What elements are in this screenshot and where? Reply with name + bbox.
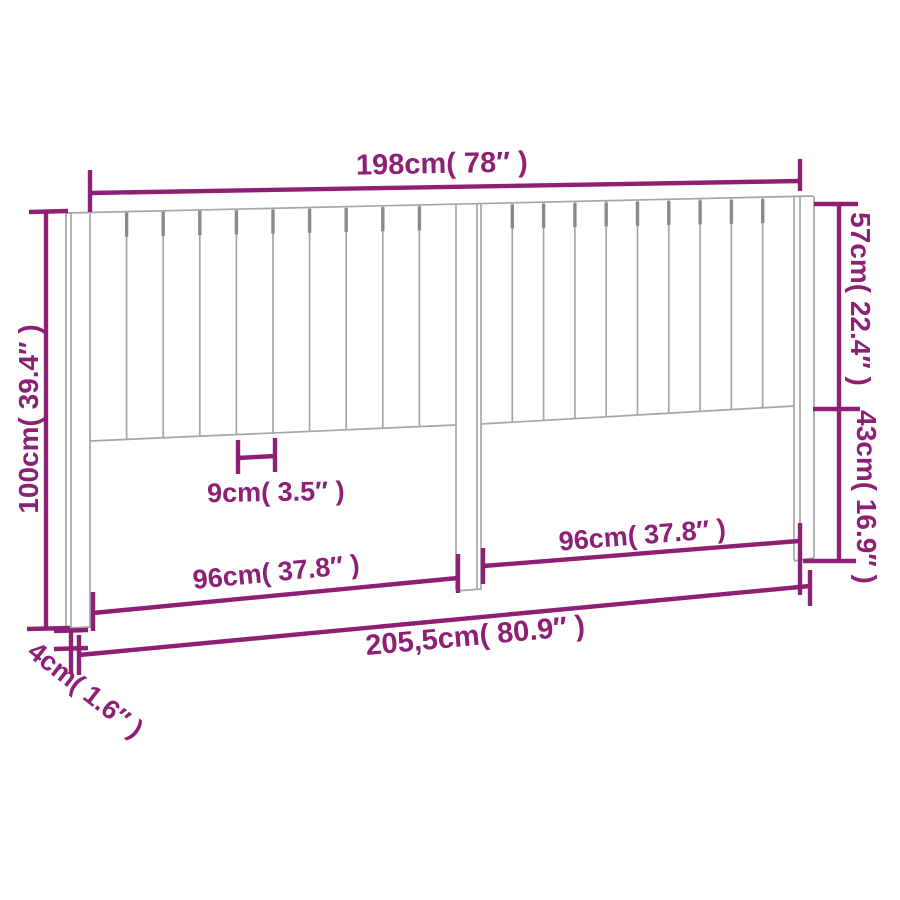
left-panel-slat-dividers xyxy=(127,205,420,439)
dim-label-right-lower-height: 43cm( 16.9″ ) xyxy=(851,410,882,584)
headboard-outline xyxy=(66,196,814,628)
dim-label-top-width: 198cm( 78″ ) xyxy=(356,146,528,181)
right-panel-slat-dividers xyxy=(512,198,762,422)
dim-left-height-tick-top xyxy=(29,211,68,212)
headboard-dimension-diagram: 198cm( 78″ ) 57cm( 22.4″ ) 43cm( 16.9″ )… xyxy=(0,0,900,900)
dim-label-slat-width: 9cm( 3.5″ ) xyxy=(207,476,345,508)
dim-label-left-height: 100cm( 39.4″ ) xyxy=(13,324,44,513)
dimension-labels: 198cm( 78″ ) 57cm( 22.4″ ) 43cm( 16.9″ )… xyxy=(13,146,882,744)
dim-leg-depth-tick-top xyxy=(54,630,88,631)
dim-label-right-upper-height: 57cm( 22.4″ ) xyxy=(845,212,876,386)
dim-slat-width-line xyxy=(238,456,275,458)
diagram-canvas: 198cm( 78″ ) 57cm( 22.4″ ) 43cm( 16.9″ )… xyxy=(0,0,900,900)
dimension-lines xyxy=(27,159,860,675)
dim-leg-depth-tick-bottom xyxy=(54,648,88,649)
dim-top-width-line xyxy=(90,181,800,193)
